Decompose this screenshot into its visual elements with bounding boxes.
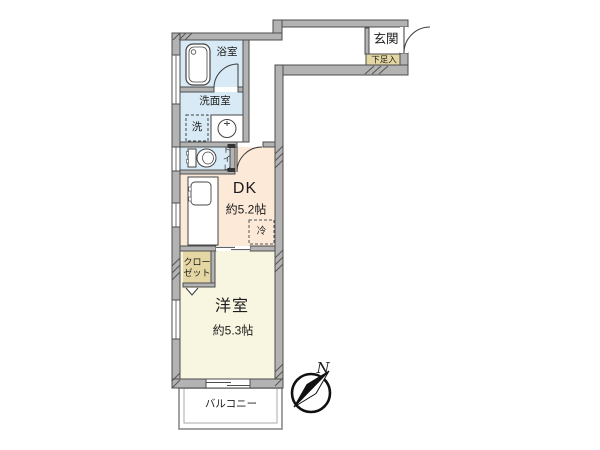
toilet-label: トイレ bbox=[222, 146, 231, 173]
kitchen-counter bbox=[188, 177, 218, 245]
floorplan: 浴室 洗面室 洗 トイレ DK 約5.2帖 冷 クロー ゼット 洋室 約5.3帖… bbox=[0, 0, 600, 450]
wall-bath-corridor bbox=[243, 40, 249, 142]
bathtub-icon bbox=[186, 44, 210, 85]
wall-entrance-partition bbox=[365, 28, 369, 54]
western-room-size-label: 約5.3帖 bbox=[213, 324, 254, 337]
wall-entrance-right bbox=[400, 53, 408, 66]
balcony-label: バルコニー bbox=[205, 399, 257, 411]
washing-machine-label: 洗 bbox=[192, 122, 203, 134]
opening-dk-western-sliding bbox=[216, 246, 250, 251]
wall-closet-bottom bbox=[183, 283, 215, 287]
sink-icon bbox=[211, 115, 243, 142]
wall-closet-right bbox=[211, 251, 215, 287]
washroom-label: 洗面室 bbox=[199, 96, 231, 108]
closet-label-line1: クロー bbox=[183, 257, 210, 268]
closet-label-line2: ゼット bbox=[183, 268, 210, 279]
window-toilet bbox=[172, 147, 180, 171]
bath-label: 浴室 bbox=[217, 47, 238, 59]
refrigerator-label: 冷 bbox=[257, 227, 267, 237]
wall-bath-wash-left bbox=[180, 87, 214, 92]
window-western-room bbox=[172, 300, 180, 339]
entrance-label: 玄関 bbox=[373, 33, 398, 47]
window-kitchen bbox=[172, 203, 180, 227]
western-room-label: 洋室 bbox=[215, 298, 249, 316]
shoe-box-label: 下足入 bbox=[371, 55, 397, 64]
wall-hall-top bbox=[273, 20, 408, 27]
window-bath bbox=[172, 55, 180, 104]
wall-dk-west-right bbox=[250, 246, 275, 251]
wall-main-right bbox=[275, 65, 283, 388]
wall-dk-top-right bbox=[263, 142, 275, 147]
dk-size-label: 約5.2帖 bbox=[226, 203, 267, 216]
window-balcony-sliding bbox=[206, 379, 250, 388]
floorplan-drawing bbox=[0, 0, 600, 450]
toilet-icon bbox=[187, 149, 217, 167]
north-label: N bbox=[316, 360, 329, 377]
wall-dk-west-left bbox=[180, 246, 216, 251]
closet-label: クロー ゼット bbox=[183, 257, 210, 279]
compass bbox=[292, 371, 330, 412]
dk-label: DK bbox=[233, 180, 257, 198]
